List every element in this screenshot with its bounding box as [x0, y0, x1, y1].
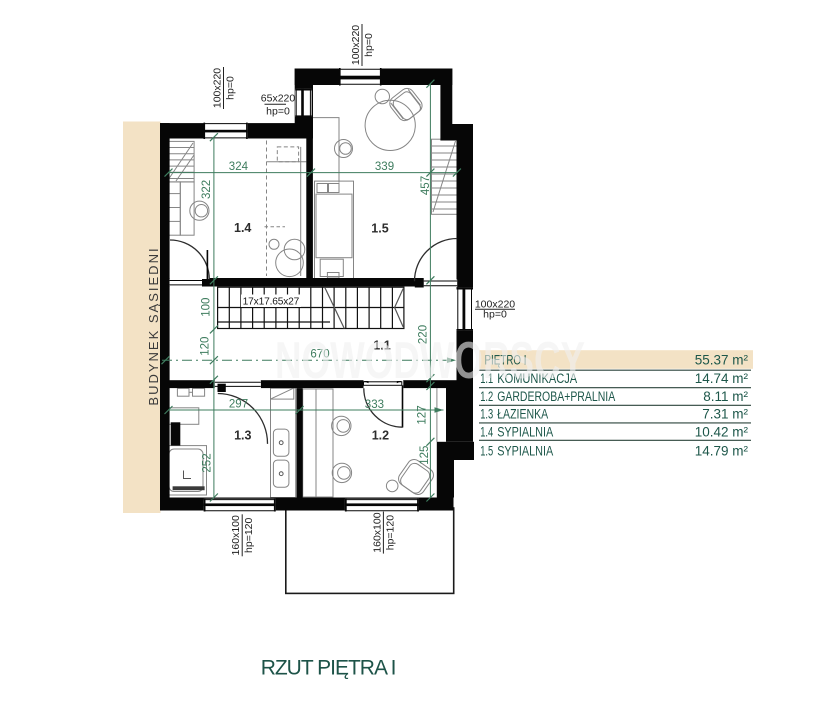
svg-text:457: 457 [420, 176, 432, 195]
svg-text:65x220: 65x220 [261, 93, 296, 105]
svg-text:1.3: 1.3 [234, 429, 251, 443]
svg-text:1.2: 1.2 [372, 429, 389, 443]
svg-text:127: 127 [416, 405, 428, 424]
svg-text:hp=0: hp=0 [363, 33, 375, 57]
svg-text:55.37 m²: 55.37 m² [695, 353, 749, 368]
svg-text:252: 252 [202, 453, 214, 472]
svg-text:339: 339 [375, 161, 394, 173]
svg-text:1.4: 1.4 [234, 221, 251, 235]
svg-text:8.11 m²: 8.11 m² [703, 389, 748, 404]
svg-text:NOWODWORSCY: NOWODWORSCY [275, 332, 585, 390]
svg-text:100: 100 [200, 298, 212, 317]
svg-text:322: 322 [201, 180, 213, 199]
svg-text:297: 297 [229, 399, 248, 411]
svg-text:hp=120: hp=120 [384, 515, 396, 550]
svg-text:hp=0: hp=0 [483, 309, 507, 321]
svg-text:RZUT PIĘTRA I: RZUT PIĘTRA I [261, 657, 396, 680]
svg-text:160x100: 160x100 [371, 512, 383, 552]
svg-text:333: 333 [365, 399, 384, 411]
svg-text:14.74 m²: 14.74 m² [695, 371, 749, 386]
svg-text:hp=120: hp=120 [243, 517, 255, 552]
svg-text:1.2: 1.2 [480, 389, 493, 404]
svg-text:100x220: 100x220 [350, 25, 362, 65]
svg-text:SYPIALNIA: SYPIALNIA [497, 424, 553, 439]
svg-text:10.42 m²: 10.42 m² [695, 424, 749, 439]
svg-text:BUDYNEK SĄSIEDNI: BUDYNEK SĄSIEDNI [146, 246, 161, 405]
svg-text:GARDEROBA+PRALNIA: GARDEROBA+PRALNIA [497, 389, 615, 404]
svg-text:324: 324 [229, 161, 249, 173]
svg-text:1.3: 1.3 [480, 407, 493, 422]
svg-text:1.4: 1.4 [480, 424, 493, 439]
svg-text:ŁAZIENKA: ŁAZIENKA [497, 407, 548, 422]
svg-text:160x100: 160x100 [230, 515, 242, 555]
svg-text:120: 120 [200, 337, 212, 356]
svg-text:125: 125 [419, 446, 431, 465]
svg-text:7.31 m²: 7.31 m² [702, 407, 748, 422]
svg-text:14.79 m²: 14.79 m² [695, 444, 749, 459]
svg-text:1.5: 1.5 [480, 444, 493, 459]
svg-text:1.5: 1.5 [371, 222, 388, 236]
svg-text:hp=0: hp=0 [266, 106, 290, 118]
svg-text:100x220: 100x220 [212, 68, 224, 108]
svg-text:17x17.65x27: 17x17.65x27 [243, 296, 300, 307]
svg-text:SYPIALNIA: SYPIALNIA [497, 444, 553, 459]
svg-text:hp=0: hp=0 [225, 76, 237, 100]
